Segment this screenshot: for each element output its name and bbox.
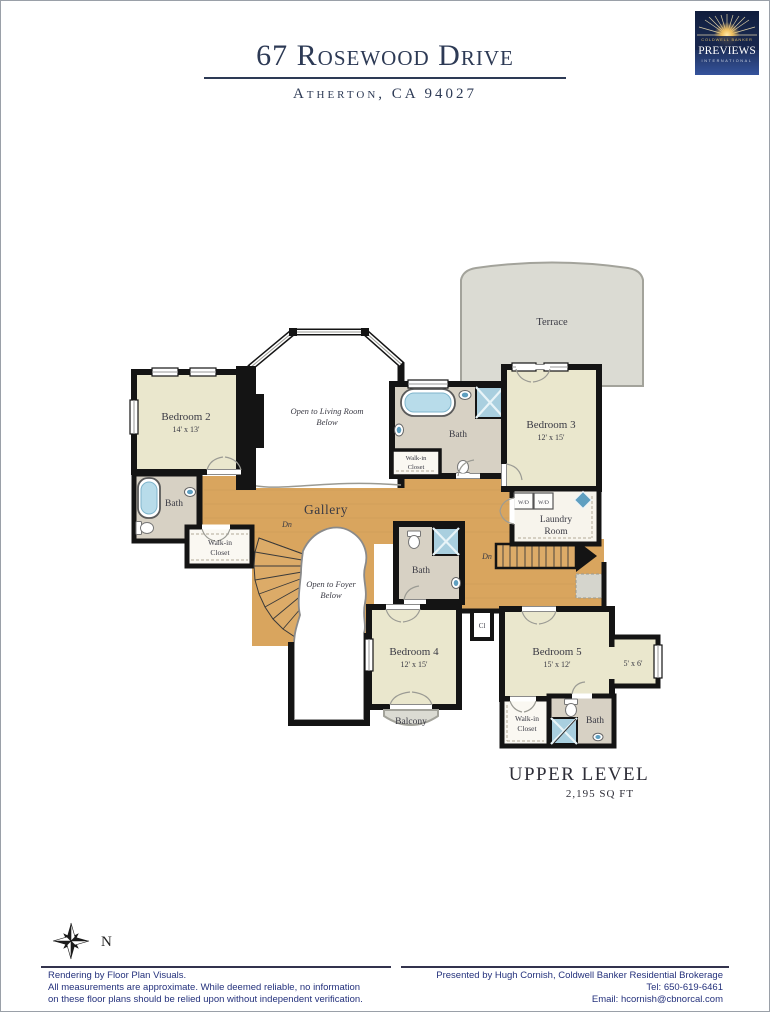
footer-left: Rendering by Floor Plan Visuals. All mea… [48, 970, 363, 1006]
footer-presented-by: Presented by Hugh Cornish, Coldwell Bank… [436, 970, 723, 982]
level-label: UPPER LEVEL [479, 764, 679, 786]
room-bedroom-4: Bedroom 4 12' x 15' [365, 607, 459, 707]
room-balcony: Balcony [384, 710, 438, 727]
title-underline [204, 77, 566, 79]
level-area: 2,195 SQ FT [479, 788, 679, 800]
walkin-s-label-2: Closet [517, 724, 537, 733]
room-closet-small: Cl [472, 611, 492, 639]
open-foyer-label-1: Open to Foyer [306, 579, 356, 589]
walkin-w-label-2: Closet [210, 548, 230, 557]
level-caption: UPPER LEVEL 2,195 SQ FT [479, 764, 679, 800]
footer-rule-left [41, 966, 391, 968]
gallery-label: Gallery [304, 502, 348, 517]
foyer-void [294, 528, 366, 720]
logo-name-text: PREVIEWS [698, 45, 756, 57]
sink [395, 424, 404, 436]
closet-small-label: Cl [479, 622, 486, 630]
footer-disclaimer-1: All measurements are approximate. While … [48, 982, 363, 994]
shower [433, 528, 459, 555]
footer-phone: Tel: 650-619-6461 [436, 982, 723, 994]
washer-label: W/D [518, 500, 529, 506]
bath-se-label: Bath [586, 716, 604, 726]
footer-rule-right [401, 966, 729, 968]
bath-s-label: Bath [412, 566, 430, 576]
room-bath-north: Bath Walk-in Closet [392, 380, 506, 478]
stair-run [496, 544, 576, 568]
bath-nw-label: Bath [165, 499, 183, 509]
alcove-dims: 5' x 6' [624, 659, 643, 668]
bath-n-label: Bath [449, 430, 467, 440]
toilet [565, 699, 578, 717]
bathtub [138, 478, 160, 518]
room-bedroom-5: Bedroom 5 15' x 12' [502, 609, 612, 699]
bedroom3-label: Bedroom 3 [526, 419, 576, 431]
room-walkin-north: Walk-in Closet [392, 450, 440, 476]
north-label: N [101, 934, 112, 950]
dryer-label: W/D [538, 500, 549, 506]
room-laundry: W/D W/D Laundry Room [500, 489, 599, 544]
open-living-label-2: Below [316, 417, 338, 427]
laundry-label-1: Laundry [540, 515, 572, 525]
sink [452, 578, 461, 589]
shower [551, 718, 577, 744]
bedroom4-dims: 12' x 15' [401, 660, 428, 669]
logo-brand-text: COLDWELL BANKER [701, 37, 752, 42]
bedroom3-dims: 12' x 15' [538, 433, 565, 442]
room-walkin-west: Walk-in Closet [187, 527, 252, 566]
room-bedroom-3: Bedroom 3 12' x 15' [504, 363, 599, 489]
bedroom2-label: Bedroom 2 [161, 411, 210, 423]
sink [185, 488, 196, 497]
header: 67 Rosewood Drive Atherton, CA 94027 [1, 41, 769, 103]
stair-landing [576, 574, 604, 598]
room-alcove: 5' x 6' [612, 637, 662, 686]
toilet [136, 522, 154, 535]
window [365, 639, 373, 671]
open-foyer-label-2: Below [320, 590, 342, 600]
chimney [251, 394, 264, 448]
room-bedroom-2: Bedroom 2 14' x 13' [130, 368, 241, 472]
page-subtitle: Atherton, CA 94027 [1, 86, 769, 103]
sink [593, 733, 603, 741]
flyer-page: 67 Rosewood Drive Atherton, CA 94027 COL… [0, 0, 770, 1012]
open-to-foyer: Open to Foyer Below [291, 528, 367, 723]
stairs-down-label: Dn [281, 520, 292, 529]
bedroom2-dims: 14' x 13' [173, 425, 200, 434]
walkin-n-label-1: Walk-in [406, 455, 428, 462]
walkin-n-label-2: Closet [408, 464, 425, 471]
window [408, 380, 448, 388]
dryer: W/D [534, 493, 553, 509]
stairs-down-label: Dn [481, 552, 492, 561]
room-bath-south: Bath [396, 524, 462, 602]
walkin-w-label-1: Walk-in [208, 538, 232, 547]
toilet [408, 531, 421, 549]
footer-credit: Rendering by Floor Plan Visuals. [48, 970, 363, 982]
open-living-label-1: Open to Living Room [291, 406, 364, 416]
page-title: 67 Rosewood Drive [1, 41, 769, 71]
bedroom4-label: Bedroom 4 [389, 646, 439, 658]
walkin-s-label-1: Walk-in [515, 714, 539, 723]
shower [476, 387, 504, 418]
compass-rose: N [43, 913, 143, 971]
washer: W/D [514, 493, 533, 509]
terrace-label: Terrace [536, 317, 568, 328]
compass-star-icon [53, 923, 89, 959]
bedroom5-label: Bedroom 5 [532, 646, 582, 658]
floor-plan: Terrace Gallery [124, 254, 674, 764]
footer-disclaimer-2: on these floor plans should be relied up… [48, 994, 363, 1006]
room-walkin-south: Walk-in Closet [502, 699, 549, 746]
bedroom5-dims: 15' x 12' [544, 660, 571, 669]
footer-email: Email: hcornish@cbnorcal.com [436, 994, 723, 1006]
bathtub [401, 389, 455, 416]
balcony-label: Balcony [395, 717, 427, 727]
laundry-label-2: Room [544, 527, 568, 537]
sink [459, 391, 471, 400]
window [654, 645, 662, 678]
open-to-living-room: Open to Living Room Below [251, 328, 401, 488]
footer-right: Presented by Hugh Cornish, Coldwell Bank… [436, 970, 723, 1006]
logo-tagline-text: INTERNATIONAL [702, 59, 753, 63]
brand-logo: COLDWELL BANKER PREVIEWS INTERNATIONAL [695, 11, 759, 75]
